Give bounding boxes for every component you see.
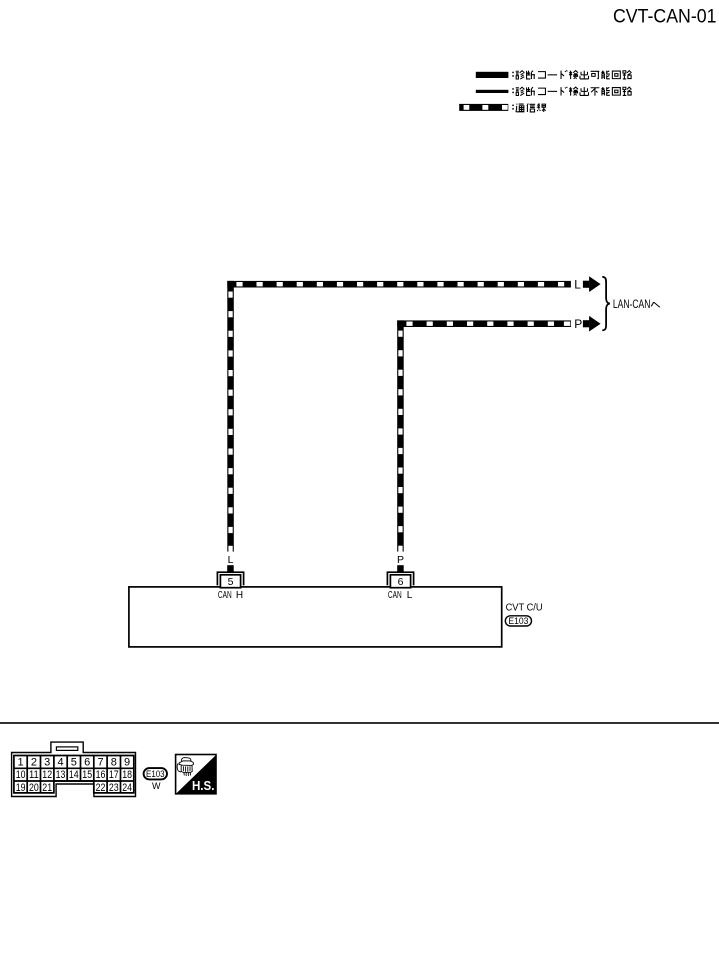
svg-text:17: 17 [109, 769, 119, 781]
svg-text:16: 16 [96, 769, 106, 781]
svg-text:18: 18 [122, 769, 132, 781]
svg-text:CAN: CAN [218, 590, 232, 601]
svg-text:1: 1 [18, 756, 24, 768]
svg-text:CAN: CAN [388, 590, 402, 601]
svg-text:L: L [407, 590, 413, 601]
svg-text:9: 9 [124, 756, 130, 768]
svg-text:10: 10 [16, 769, 26, 781]
svg-text:21: 21 [42, 782, 52, 794]
svg-text:5: 5 [228, 576, 234, 588]
svg-text:E103: E103 [508, 616, 528, 626]
svg-text:12: 12 [42, 769, 52, 781]
svg-text:15: 15 [82, 769, 92, 781]
svg-text:W: W [152, 781, 161, 791]
svg-text:14: 14 [69, 769, 79, 781]
svg-text:P: P [397, 554, 404, 566]
svg-text:13: 13 [56, 769, 66, 781]
svg-text:22: 22 [96, 782, 106, 794]
svg-text:24: 24 [122, 782, 132, 794]
svg-text:23: 23 [109, 782, 119, 794]
svg-text:6: 6 [84, 756, 90, 768]
svg-text:L: L [228, 554, 234, 566]
svg-text:E103: E103 [146, 769, 165, 780]
svg-text:4: 4 [57, 756, 63, 768]
svg-text:7: 7 [97, 756, 103, 768]
svg-text:H.S.: H.S. [192, 778, 215, 793]
svg-text:19: 19 [16, 782, 26, 794]
svg-text:P: P [574, 317, 582, 331]
svg-text:3: 3 [44, 756, 50, 768]
svg-text:CVT-CAN-01: CVT-CAN-01 [613, 6, 717, 28]
svg-text:LAN-CAN: LAN-CAN [613, 299, 651, 311]
svg-text:5: 5 [71, 756, 77, 768]
svg-text:11: 11 [29, 769, 39, 781]
svg-text:H: H [236, 590, 243, 601]
svg-text:8: 8 [111, 756, 117, 768]
svg-text:2: 2 [31, 756, 37, 768]
svg-text:L: L [574, 277, 581, 291]
svg-text:6: 6 [398, 576, 404, 588]
svg-text:20: 20 [29, 782, 39, 794]
svg-text:CVT C/U: CVT C/U [506, 603, 543, 614]
